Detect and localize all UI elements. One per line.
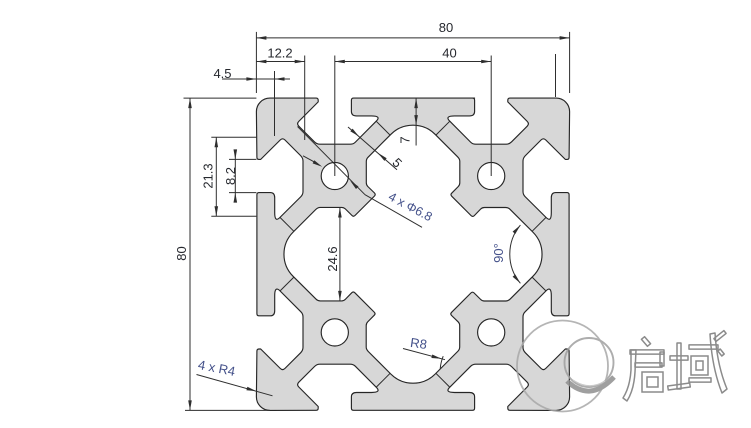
svg-text:21.3: 21.3	[200, 163, 215, 188]
svg-text:40: 40	[442, 45, 456, 60]
svg-text:80: 80	[439, 20, 453, 35]
svg-text:90°: 90°	[491, 243, 506, 263]
svg-text:7: 7	[397, 136, 412, 143]
svg-text:12.2: 12.2	[267, 45, 292, 60]
svg-text:4.5: 4.5	[213, 66, 231, 81]
svg-text:R8: R8	[409, 335, 428, 352]
svg-text:80: 80	[174, 246, 189, 260]
svg-text:8.2: 8.2	[223, 167, 238, 185]
svg-text:24.6: 24.6	[325, 246, 340, 271]
